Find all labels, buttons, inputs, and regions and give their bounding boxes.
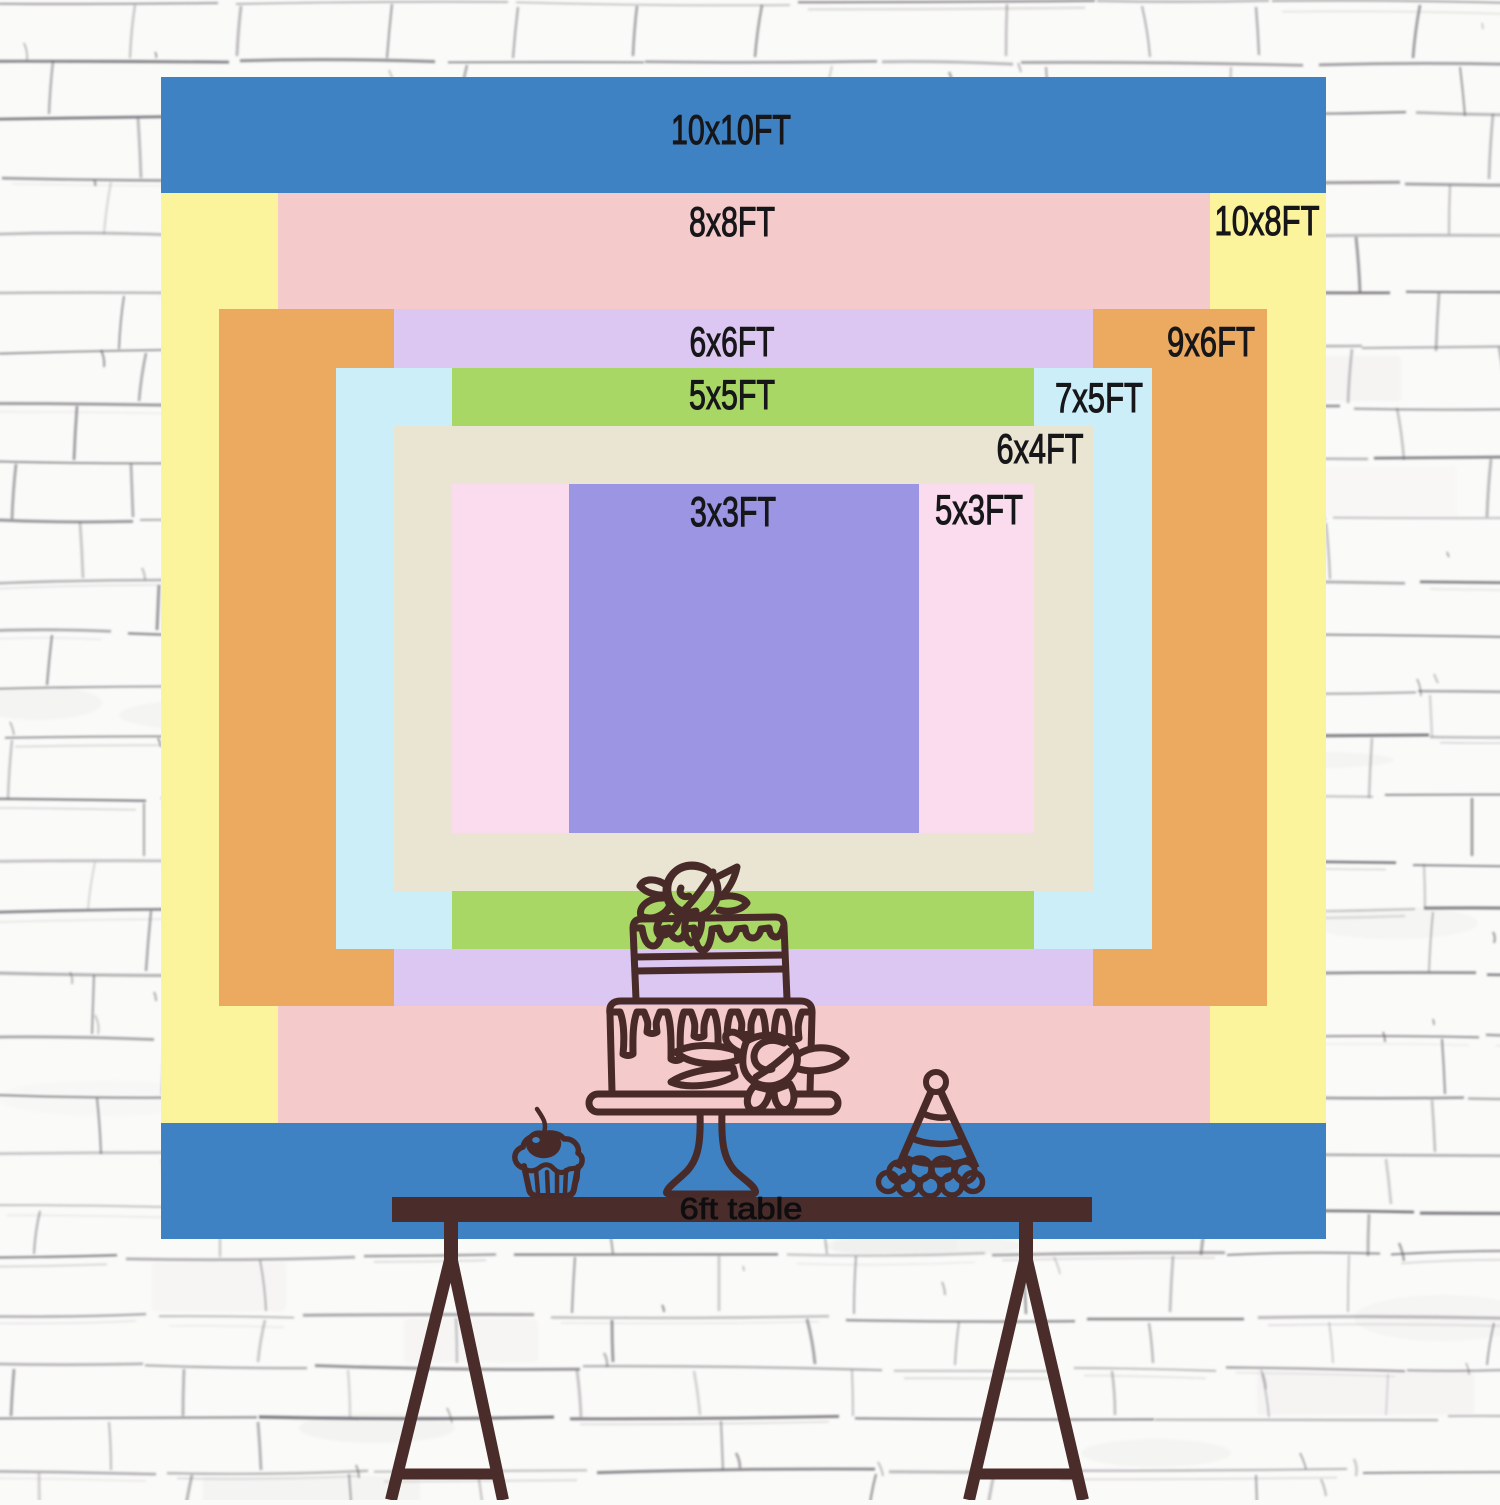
svg-text:9x6FT: 9x6FT: [1167, 318, 1255, 365]
svg-text:7x5FT: 7x5FT: [1055, 374, 1143, 421]
svg-text:5x5FT: 5x5FT: [689, 371, 775, 418]
svg-text:6x4FT: 6x4FT: [997, 425, 1084, 472]
svg-text:10x10FT: 10x10FT: [671, 106, 791, 153]
svg-text:3x3FT: 3x3FT: [690, 488, 776, 535]
svg-text:6x6FT: 6x6FT: [690, 318, 775, 365]
svg-text:5x3FT: 5x3FT: [935, 486, 1023, 533]
svg-text:8x8FT: 8x8FT: [689, 198, 775, 245]
svg-text:10x8FT: 10x8FT: [1215, 197, 1320, 244]
